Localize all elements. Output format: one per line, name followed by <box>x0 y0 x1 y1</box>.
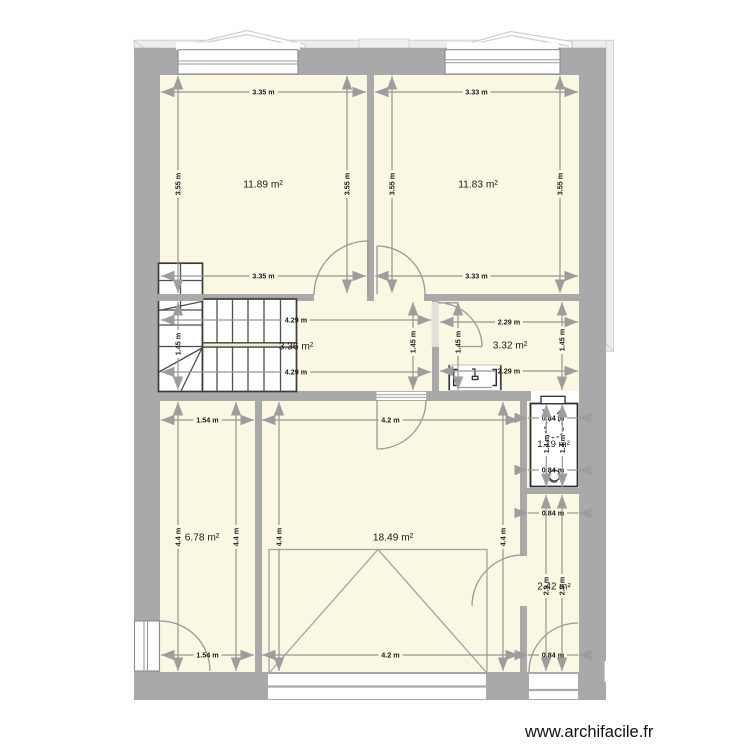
svg-text:3.55 m: 3.55 m <box>343 173 352 195</box>
svg-text:11.89 m²: 11.89 m² <box>243 180 283 191</box>
svg-text:4.29 m: 4.29 m <box>285 316 307 325</box>
svg-text:3.55 m: 3.55 m <box>174 173 183 195</box>
svg-text:3.55 m: 3.55 m <box>388 173 397 195</box>
svg-text:1.45 m: 1.45 m <box>174 333 183 355</box>
svg-text:3.33 m: 3.33 m <box>465 272 487 281</box>
svg-text:1.4 m: 1.4 m <box>542 435 551 453</box>
svg-text:18.49 m²: 18.49 m² <box>373 533 414 544</box>
svg-text:0.84 m: 0.84 m <box>542 466 564 475</box>
svg-text:3.35 m: 3.35 m <box>252 272 274 281</box>
svg-text:3.36 m²: 3.36 m² <box>279 342 314 353</box>
svg-text:4.2 m: 4.2 m <box>381 416 399 425</box>
svg-text:3.55 m: 3.55 m <box>556 173 565 195</box>
svg-text:0.84 m: 0.84 m <box>542 509 564 518</box>
svg-text:1.45 m: 1.45 m <box>409 331 418 353</box>
svg-text:4.4 m: 4.4 m <box>174 528 183 546</box>
svg-text:1.54 m: 1.54 m <box>196 416 218 425</box>
svg-text:3.32 m²: 3.32 m² <box>493 341 528 352</box>
svg-text:4.2 m: 4.2 m <box>381 651 399 660</box>
svg-text:4.4 m: 4.4 m <box>499 528 508 546</box>
svg-text:1.45 m: 1.45 m <box>454 331 463 353</box>
svg-text:2.29 m: 2.29 m <box>498 367 520 376</box>
svg-text:2.9 m: 2.9 m <box>542 577 551 595</box>
svg-text:1.54 m: 1.54 m <box>196 651 218 660</box>
svg-text:www.archifacile.fr: www.archifacile.fr <box>524 723 654 741</box>
svg-text:2.9 m: 2.9 m <box>558 577 567 595</box>
svg-text:4.29 m: 4.29 m <box>285 368 307 377</box>
svg-text:3.35 m: 3.35 m <box>252 88 274 97</box>
svg-text:11.83 m²: 11.83 m² <box>458 180 498 191</box>
svg-text:3.33 m: 3.33 m <box>465 88 487 97</box>
svg-text:1.4 m: 1.4 m <box>558 435 567 453</box>
svg-text:4.4 m: 4.4 m <box>232 528 241 546</box>
svg-text:4.4 m: 4.4 m <box>275 528 284 546</box>
svg-text:6.78 m²: 6.78 m² <box>185 533 220 544</box>
svg-text:1.45 m: 1.45 m <box>558 329 567 351</box>
svg-text:2.29 m: 2.29 m <box>498 318 520 327</box>
